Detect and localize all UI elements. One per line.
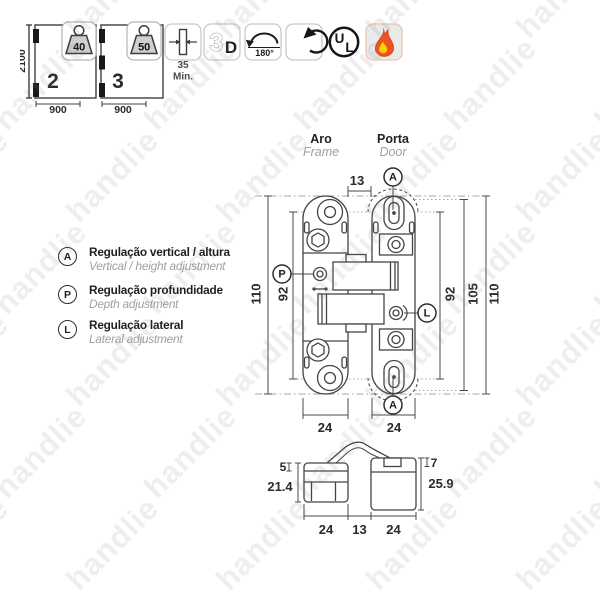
watermark-text: handlie [587, 214, 600, 321]
frame-title-en: Frame [303, 145, 339, 159]
dim-frame-92: 92 [276, 287, 291, 301]
hinge-mark [99, 83, 105, 97]
door-slot-side [410, 222, 415, 233]
svg-text:3: 3 [210, 29, 224, 57]
legend-pt-depth: Regulação profundidade [89, 284, 223, 298]
door-slot-side [374, 222, 379, 233]
hinge-mark [99, 29, 105, 43]
watermark-text: handlie [509, 490, 600, 597]
section-view-drawing: 5 21.4 7 25.9 24 13 24 [255, 425, 470, 545]
frame-slot [342, 222, 347, 233]
svg-text:50: 50 [138, 42, 150, 54]
legend-pt-lateral: Regulação lateral [89, 319, 183, 333]
marker-p-badge: P [58, 285, 77, 304]
watermark-text: handlie [0, 306, 16, 413]
hinge-mark [33, 83, 39, 97]
rotation-icon [286, 24, 327, 60]
dim-frame-lip: 5 [280, 460, 287, 474]
legend-en-vertical: Vertical / height adjustment [89, 260, 230, 274]
frame-title-pt: Aro [310, 132, 332, 146]
door-lip-notch [384, 458, 401, 467]
marker-a-badge: A [58, 247, 77, 266]
legend-item-vertical: A Regulação vertical / altura Vertical /… [58, 246, 230, 274]
ul-certification-icon: U L [330, 28, 358, 56]
weight-badge-40: 40 [62, 22, 96, 60]
door-title-pt: Porta [377, 132, 410, 146]
svg-text:A: A [389, 172, 397, 184]
svg-text:180°: 180° [255, 48, 274, 58]
watermark-text: handlie [587, 398, 600, 505]
weight-handle-icon [139, 26, 149, 36]
weight-badge-50: 50 [127, 22, 161, 60]
catalog-page: 2100 900 2 40 900 3 50 [0, 0, 600, 600]
svg-text:L: L [424, 308, 431, 320]
spec-icons-row: 2100 900 2 40 900 3 50 [20, 14, 410, 122]
dim-door-92: 92 [443, 287, 458, 301]
svg-text:D: D [225, 38, 237, 57]
svg-text:A: A [389, 400, 397, 412]
dim-frame-depth: 21.4 [267, 479, 293, 494]
legend-item-lateral: L Regulação lateral Lateral adjustment [58, 319, 183, 347]
frame-slot [342, 357, 347, 368]
svg-text:U: U [335, 31, 345, 46]
frame-slot [305, 357, 310, 368]
watermark-text: handlie [509, 306, 600, 413]
watermark-text: handlie [0, 398, 94, 505]
watermark-text: handlie [59, 490, 166, 597]
watermark-text: handlie [0, 490, 16, 597]
hinge-mark [99, 56, 105, 70]
opening-angle-icon: 180° [245, 24, 281, 60]
watermark-text: handlie [509, 122, 600, 229]
svg-text:40: 40 [73, 42, 85, 54]
dim-section-door-width: 24 [386, 522, 401, 537]
section-bodies [304, 442, 416, 510]
watermark-text: handlie [437, 30, 544, 137]
dim-door-lip: 7 [431, 456, 438, 470]
legend-item-depth: P Regulação profundidade Depth adjustmen… [58, 284, 223, 312]
door-width-label: 900 [49, 104, 67, 116]
dim-section-frame-width: 24 [319, 522, 334, 537]
front-view-drawing: Aro Frame Porta Door [230, 125, 500, 440]
door-title-en: Door [379, 145, 407, 159]
watermark-text: handlie [0, 0, 16, 46]
dim-section-gap: 13 [352, 522, 366, 537]
dim-door-110: 110 [487, 284, 501, 305]
dim-door-depth: 25.9 [428, 476, 453, 491]
frame-slot [305, 222, 310, 233]
watermark-text: handlie [137, 398, 244, 505]
min-thickness-value: 35 [177, 60, 189, 71]
watermark-text: handlie [59, 122, 166, 229]
min-thickness-unit: Min. [173, 72, 193, 83]
dim-frame-110: 110 [249, 284, 264, 305]
min-thickness-icon [165, 24, 201, 60]
watermark-text: handlie [0, 122, 16, 229]
3d-adjustment-icon: 3 D [204, 24, 240, 60]
legend-en-lateral: Lateral adjustment [89, 333, 183, 347]
svg-text:L: L [345, 40, 353, 55]
fire-rating-icon [366, 24, 402, 60]
dim-door-105: 105 [466, 283, 481, 305]
weight-handle-icon [74, 26, 84, 36]
watermark-text: handlie [587, 30, 600, 137]
legend-en-depth: Depth adjustment [89, 298, 223, 312]
door-height-label: 2100 [20, 49, 28, 73]
dim-gap: 13 [350, 173, 364, 188]
door-width-label: 900 [114, 104, 132, 116]
svg-text:P: P [278, 269, 285, 281]
section-dimension-labels: 5 21.4 7 25.9 24 13 24 [267, 456, 453, 537]
legend-pt-vertical: Regulação vertical / altura [89, 246, 230, 260]
hinge-mark [33, 29, 39, 43]
hinge-count-label: 2 [47, 70, 59, 93]
marker-l-badge: L [58, 320, 77, 339]
hinge-count-label: 3 [112, 70, 124, 93]
watermark-text: handlie [509, 0, 600, 46]
